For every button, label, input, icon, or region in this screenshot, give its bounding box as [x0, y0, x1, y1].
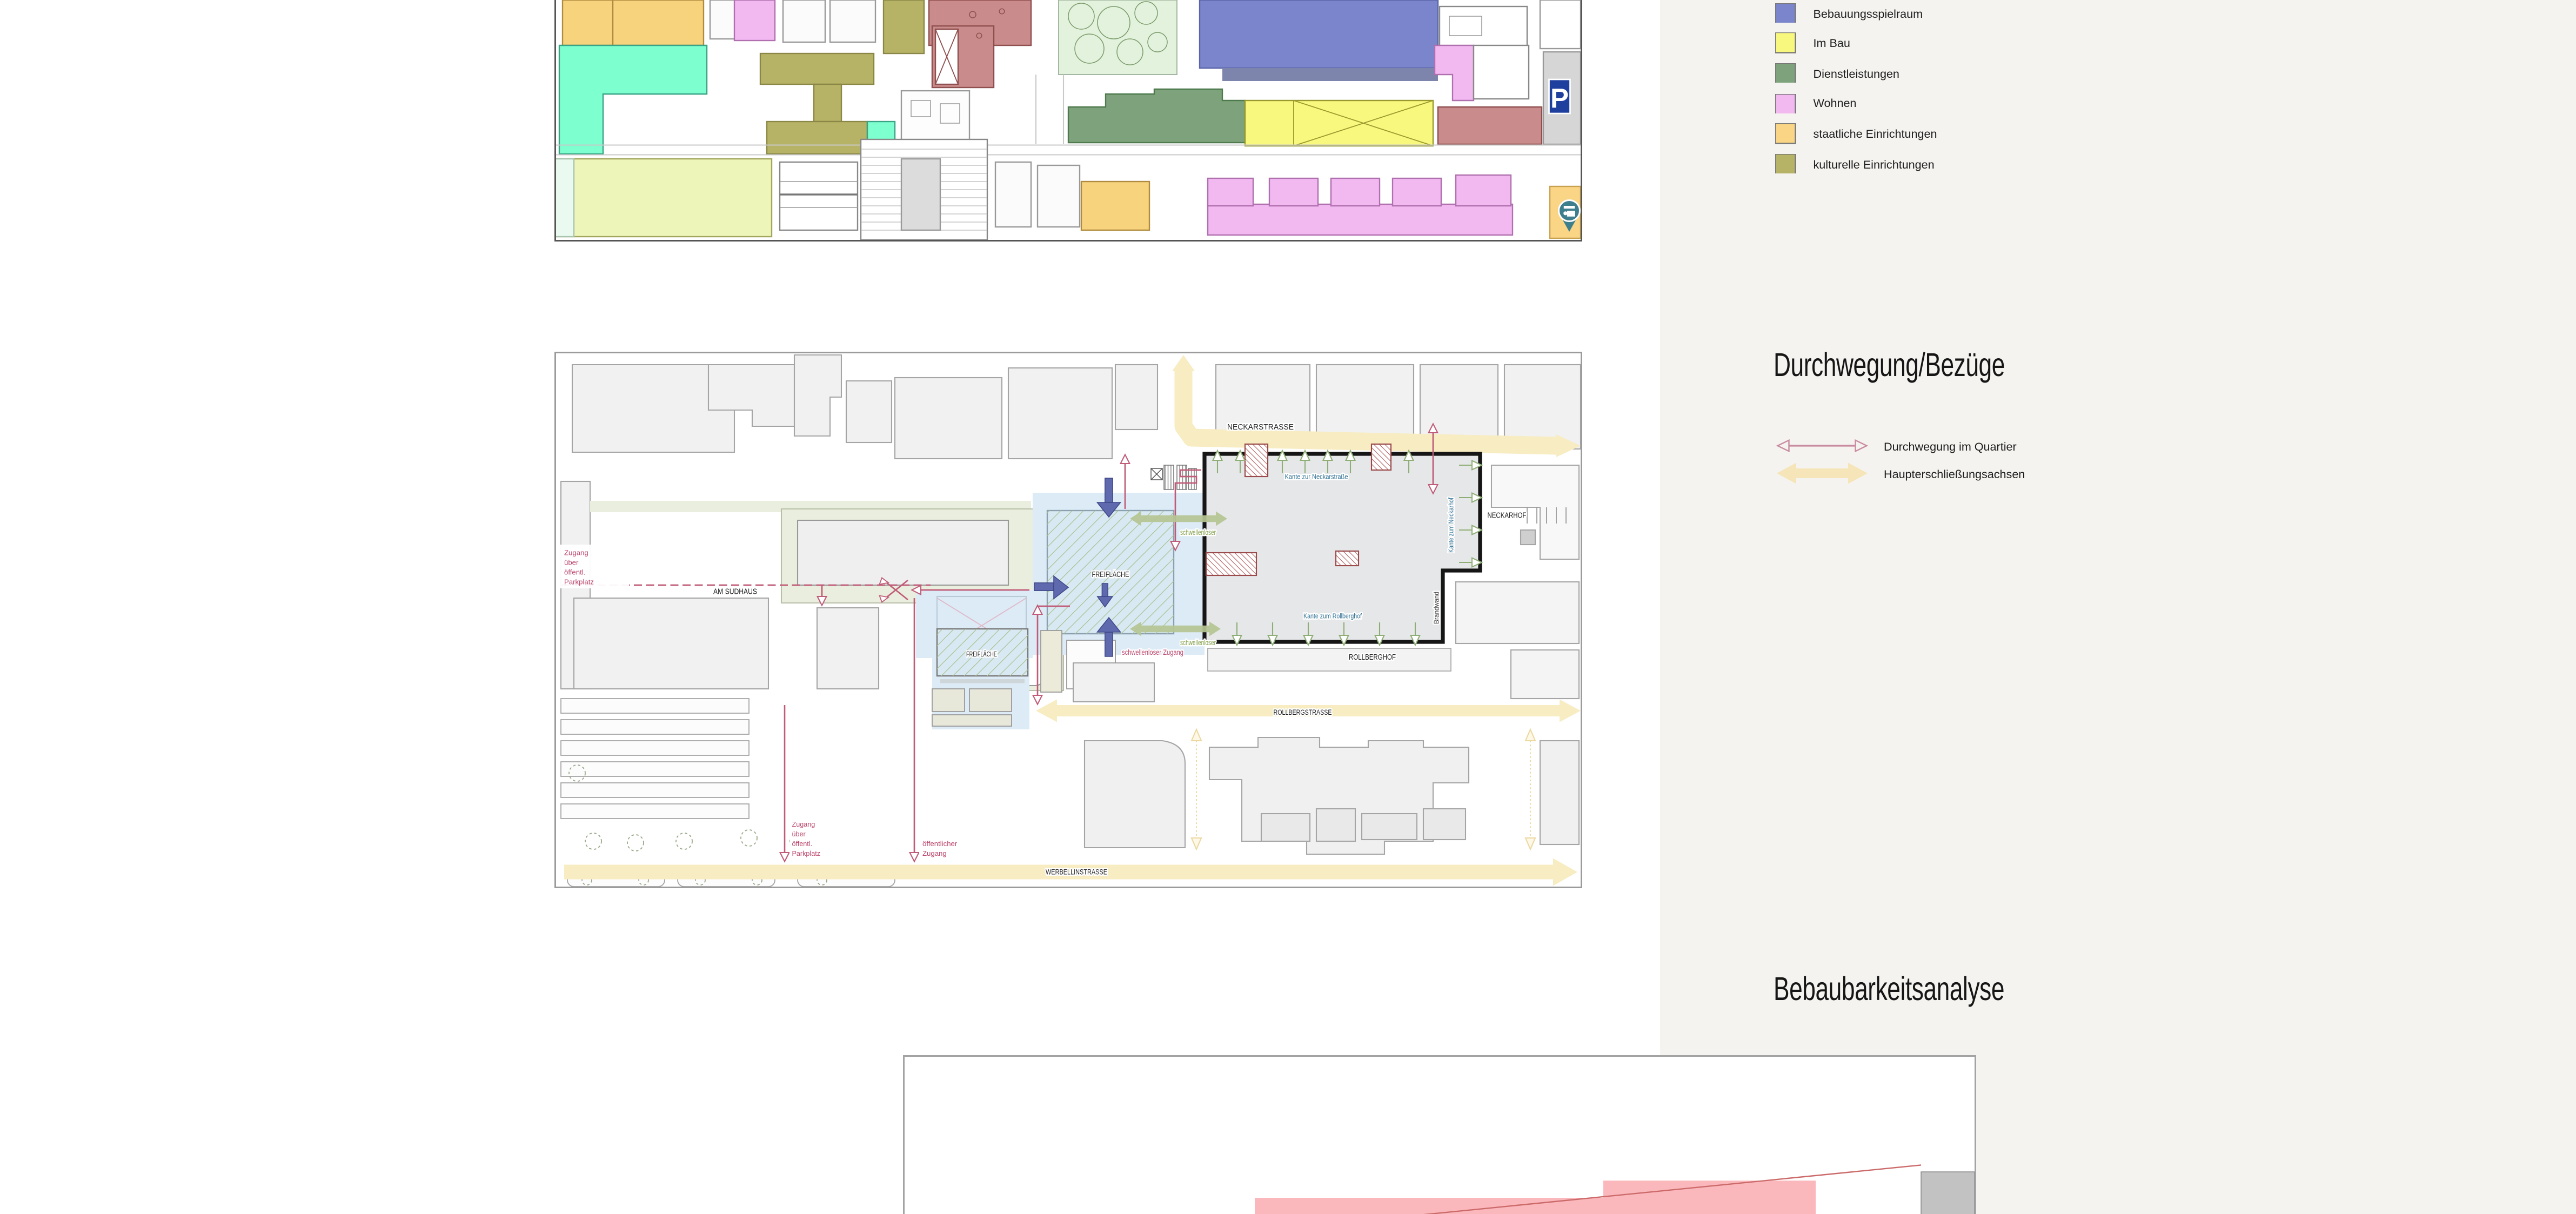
label-zugang-parkplatz-1: Zugang über öffentl. Parkplatz [559, 545, 629, 588]
parking-rows [561, 699, 895, 887]
legend-swatch [1775, 93, 1796, 114]
building-striped [780, 162, 858, 230]
poster-page: P [0, 0, 2576, 1214]
street-label-werbellinstrasse: WERBELLINSTRASSE [1046, 868, 1107, 876]
building-culture-2 [760, 53, 874, 154]
legend-item-wohnen: Wohnen [1775, 93, 1856, 114]
legend-item-hauptachsen: Haupterschließungsachsen [1775, 459, 2025, 488]
legend-label: kulturelle Einrichtungen [1814, 157, 1935, 171]
right-panel: Bebauungsspielraum Im Bau Dienstleistung… [1660, 0, 2576, 1214]
building-state [563, 0, 704, 45]
legend-item-durchwegung-quartier: Durchwegung im Quartier [1775, 434, 2017, 457]
legend-item-dienstleistungen: Dienstleistungen [1775, 63, 1899, 84]
label-schwellenlos-2: schwellenloser [1180, 639, 1216, 647]
building-paleyellow [554, 159, 772, 237]
building-state-2 [1081, 182, 1149, 230]
edge-label-neckarhof: Kante zum Neckarhof [1447, 498, 1455, 553]
edge-label-neckarstrasse: Kante zur Neckarstraße [1285, 473, 1348, 481]
legend-label: Wohnen [1814, 96, 1857, 111]
svg-text:über: über [792, 830, 806, 838]
svg-text:Parkplatz: Parkplatz [564, 578, 594, 586]
legend-label: Im Bau [1814, 36, 1850, 50]
svg-text:Parkplatz: Parkplatz [792, 850, 821, 857]
yellow-double-arrow-icon [1775, 459, 1869, 488]
place-label-rollberghof: ROLLBERGHOF [1349, 653, 1396, 662]
rollberghof-edge-building [1208, 648, 1451, 671]
building-spielraum [1200, 0, 1438, 68]
svg-text:Zugang: Zugang [564, 549, 588, 557]
area-label-freiflaeche-1: FREIFLÄCHE [1092, 570, 1129, 579]
building-floors [861, 139, 987, 240]
legend-swatch [1775, 3, 1796, 23]
svg-text:öffentlicher: öffentlicher [922, 840, 958, 848]
legend-swatch [1775, 63, 1796, 84]
building-housing [734, 0, 775, 41]
park-area [1059, 0, 1177, 75]
label-oeffentlicher-zugang: öffentlicher Zugang [919, 837, 966, 858]
legend-item-imbau: Im Bau [1775, 32, 1850, 53]
svg-text:Zugang: Zugang [922, 849, 947, 857]
legend-label: Durchwegung im Quartier [1884, 439, 2017, 453]
legend-item-staatliche: staatliche Einrichtungen [1775, 123, 1937, 144]
bebaubarkeit-figure [903, 1055, 1976, 1214]
legend-label: Bebauungsspielraum [1814, 6, 1923, 21]
section-title-durchwegung: Durchwegung/Bezüge [1774, 347, 2095, 386]
landuse-map: P [554, 0, 1582, 242]
street-label-rollbergstrasse: ROLLBERGSTRASSE [1274, 708, 1332, 716]
legend-swatch [1775, 33, 1796, 53]
legend-swatch [1775, 153, 1796, 174]
bebaubarkeit-diagram [905, 1057, 1975, 1214]
legend-item-kulturelle: kulturelle Einrichtungen [1775, 153, 1935, 175]
svg-text:über: über [564, 559, 579, 567]
edge-label-brandwand: Brandwand [1433, 592, 1441, 624]
building-red-complex [929, 0, 1031, 88]
building-teal [559, 45, 707, 154]
stairs [1151, 465, 1196, 489]
svg-text:öffentl.: öffentl. [792, 840, 813, 848]
reference-block [1921, 1172, 1975, 1214]
legend-label: Haupterschließungsachsen [1884, 466, 2025, 481]
legend-label: Dienstleistungen [1814, 66, 1899, 81]
label-schwellenloser-zugang: schwellenloser Zugang [1122, 648, 1183, 656]
parking-sign-letter: P [1550, 83, 1569, 114]
svg-text:öffentl.: öffentl. [564, 568, 585, 576]
label-zugang-parkplatz-2: Zugang über öffentl. Parkplatz [789, 819, 824, 859]
building-services [1068, 89, 1245, 143]
building-imbau [1245, 100, 1433, 146]
durchwegung-map: NECKARSTRASSE AM SUDHAUS ROLLBERGSTRASSE… [554, 352, 1582, 888]
envelope-block-1 [1255, 1198, 1603, 1214]
place-label-neckarhof: NECKARHOF [1488, 511, 1527, 520]
housing-row [1208, 175, 1513, 235]
building-culture [884, 0, 924, 53]
parking-sign-icon: P [1549, 79, 1570, 114]
edge-label-rollberghof: Kante zum Rollberghof [1303, 612, 1362, 620]
pink-double-arrow-icon [1775, 434, 1869, 457]
svg-text:Zugang: Zugang [792, 821, 815, 828]
legend-swatch [1775, 123, 1796, 144]
label-schwellenlos-1: schwellenloser [1180, 528, 1216, 536]
legend-item-bebauungsspielraum: Bebauungsspielraum [1775, 3, 1923, 24]
street-label-am-sudhaus: AM SUDHAUS [713, 588, 757, 596]
legend-label: staatliche Einrichtungen [1814, 126, 1937, 141]
section-title-bebaubarkeit: Bebaubarkeitsanalyse [1774, 971, 2094, 1010]
street-label-neckarstrasse: NECKARSTRASSE [1227, 423, 1294, 432]
area-label-freiflaeche-2: FREIFLÄCHE [966, 650, 997, 658]
